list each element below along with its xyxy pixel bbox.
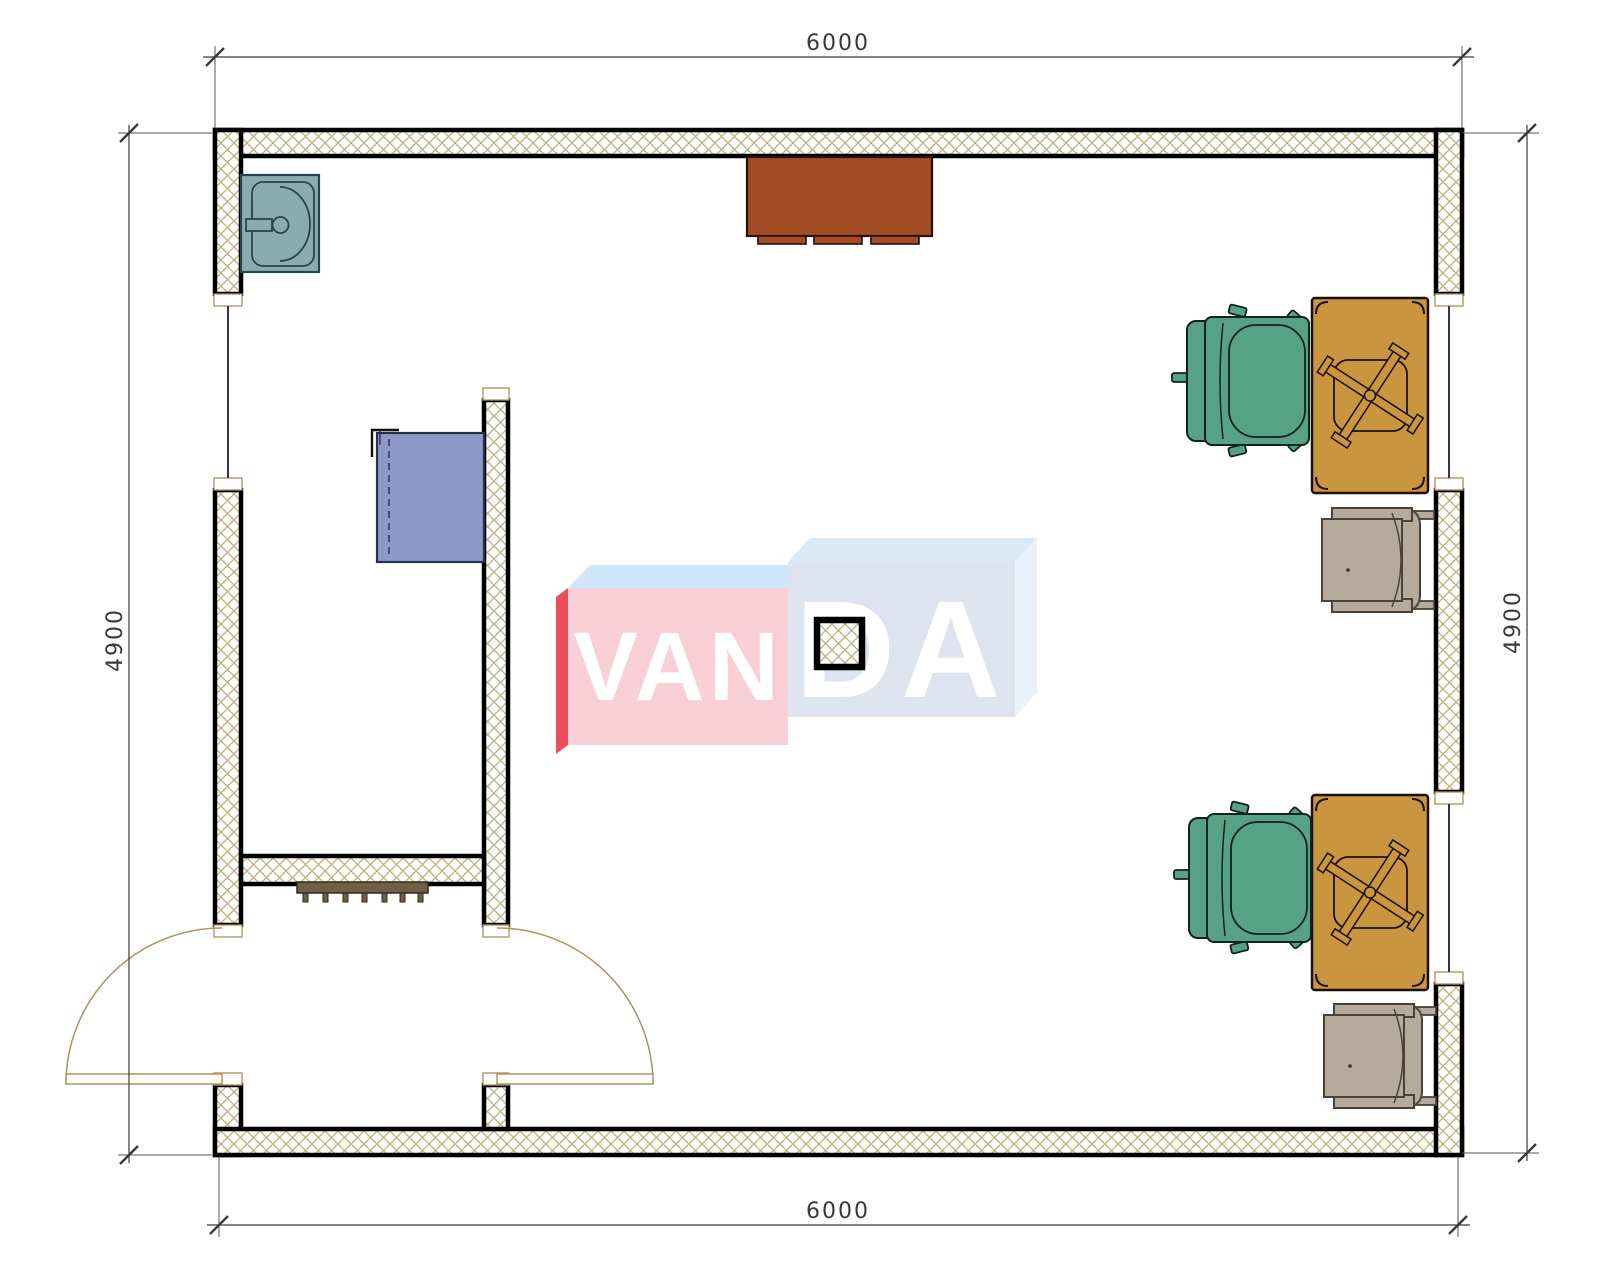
desk-lower: [1291, 795, 1448, 990]
logo-text-van: VAN: [573, 612, 783, 721]
logo-side-face-right: [1015, 538, 1037, 717]
counter-body: [377, 433, 484, 562]
vestibule-wall-stub: [484, 1085, 508, 1129]
radiator-fin: [382, 893, 387, 902]
outer-wall-left-middle: [215, 490, 241, 925]
radiator-body: [297, 882, 428, 893]
radiator-fin: [323, 893, 328, 902]
desk-upper: [1291, 298, 1448, 493]
outer-wall-top: [215, 130, 1462, 156]
outer-wall-right-middle: [1436, 490, 1462, 792]
floor-plan-canvas: VAN DA: [0, 0, 1600, 1280]
logo-top-face-right: [788, 538, 1037, 562]
outer-wall-left-upper: [215, 130, 241, 294]
cabinet-foot: [871, 236, 919, 244]
logo-top-face-left: [568, 565, 810, 588]
floor-plan-page: VAN DA: [0, 0, 1600, 1280]
wall-cap: [1435, 972, 1463, 984]
wall-cabinet: [747, 157, 932, 244]
cabinet-foot: [758, 236, 806, 244]
sink: [241, 175, 319, 272]
side-chair-lower: [1324, 1004, 1436, 1108]
counter-cabinet: [372, 430, 484, 562]
office-chair-upper: [1172, 304, 1309, 457]
wall-cap: [483, 925, 509, 937]
dimension-label-left: 4900: [103, 608, 128, 672]
dimension-label-bottom: 6000: [806, 1199, 870, 1224]
door-leaf-left: [66, 1074, 222, 1084]
side-chair-upper: [1322, 508, 1434, 612]
logo-side-face-left: [556, 588, 568, 754]
radiator-fin: [303, 893, 308, 902]
wall-cap: [483, 388, 509, 400]
interior-wall-horizontal: [241, 856, 484, 884]
wall-cap: [1435, 294, 1463, 306]
wall-cap: [214, 294, 242, 306]
cabinet-body: [747, 157, 932, 236]
office-chair-lower: [1174, 801, 1311, 954]
sink-faucet: [246, 219, 272, 231]
sink-faucet-knob: [273, 217, 289, 233]
wall-cap: [1435, 478, 1463, 490]
dimension-label-top: 6000: [806, 31, 870, 56]
door-leaf-right: [497, 1074, 653, 1084]
entry-doors: [66, 928, 653, 1084]
vanda-watermark: VAN DA: [556, 538, 1037, 754]
radiator-fin: [343, 893, 348, 902]
interior-wall-vertical: [484, 400, 508, 925]
wall-cap: [214, 478, 242, 490]
outer-wall-right-lower: [1436, 984, 1462, 1155]
wall-cap: [1435, 792, 1463, 804]
outer-wall-right-upper: [1436, 130, 1462, 294]
door-swing-arc-left: [66, 928, 222, 1084]
outer-wall-bottom: [215, 1129, 1462, 1155]
radiator-fin: [400, 893, 405, 902]
radiator-fin: [362, 893, 367, 902]
radiator: [297, 882, 428, 902]
structural-column: [817, 620, 862, 667]
radiator-fin: [418, 893, 423, 902]
door-swing-arc-right: [497, 928, 653, 1084]
cabinet-foot: [814, 236, 862, 244]
wall-cap: [214, 925, 242, 937]
dimension-label-right: 4900: [1501, 590, 1526, 654]
